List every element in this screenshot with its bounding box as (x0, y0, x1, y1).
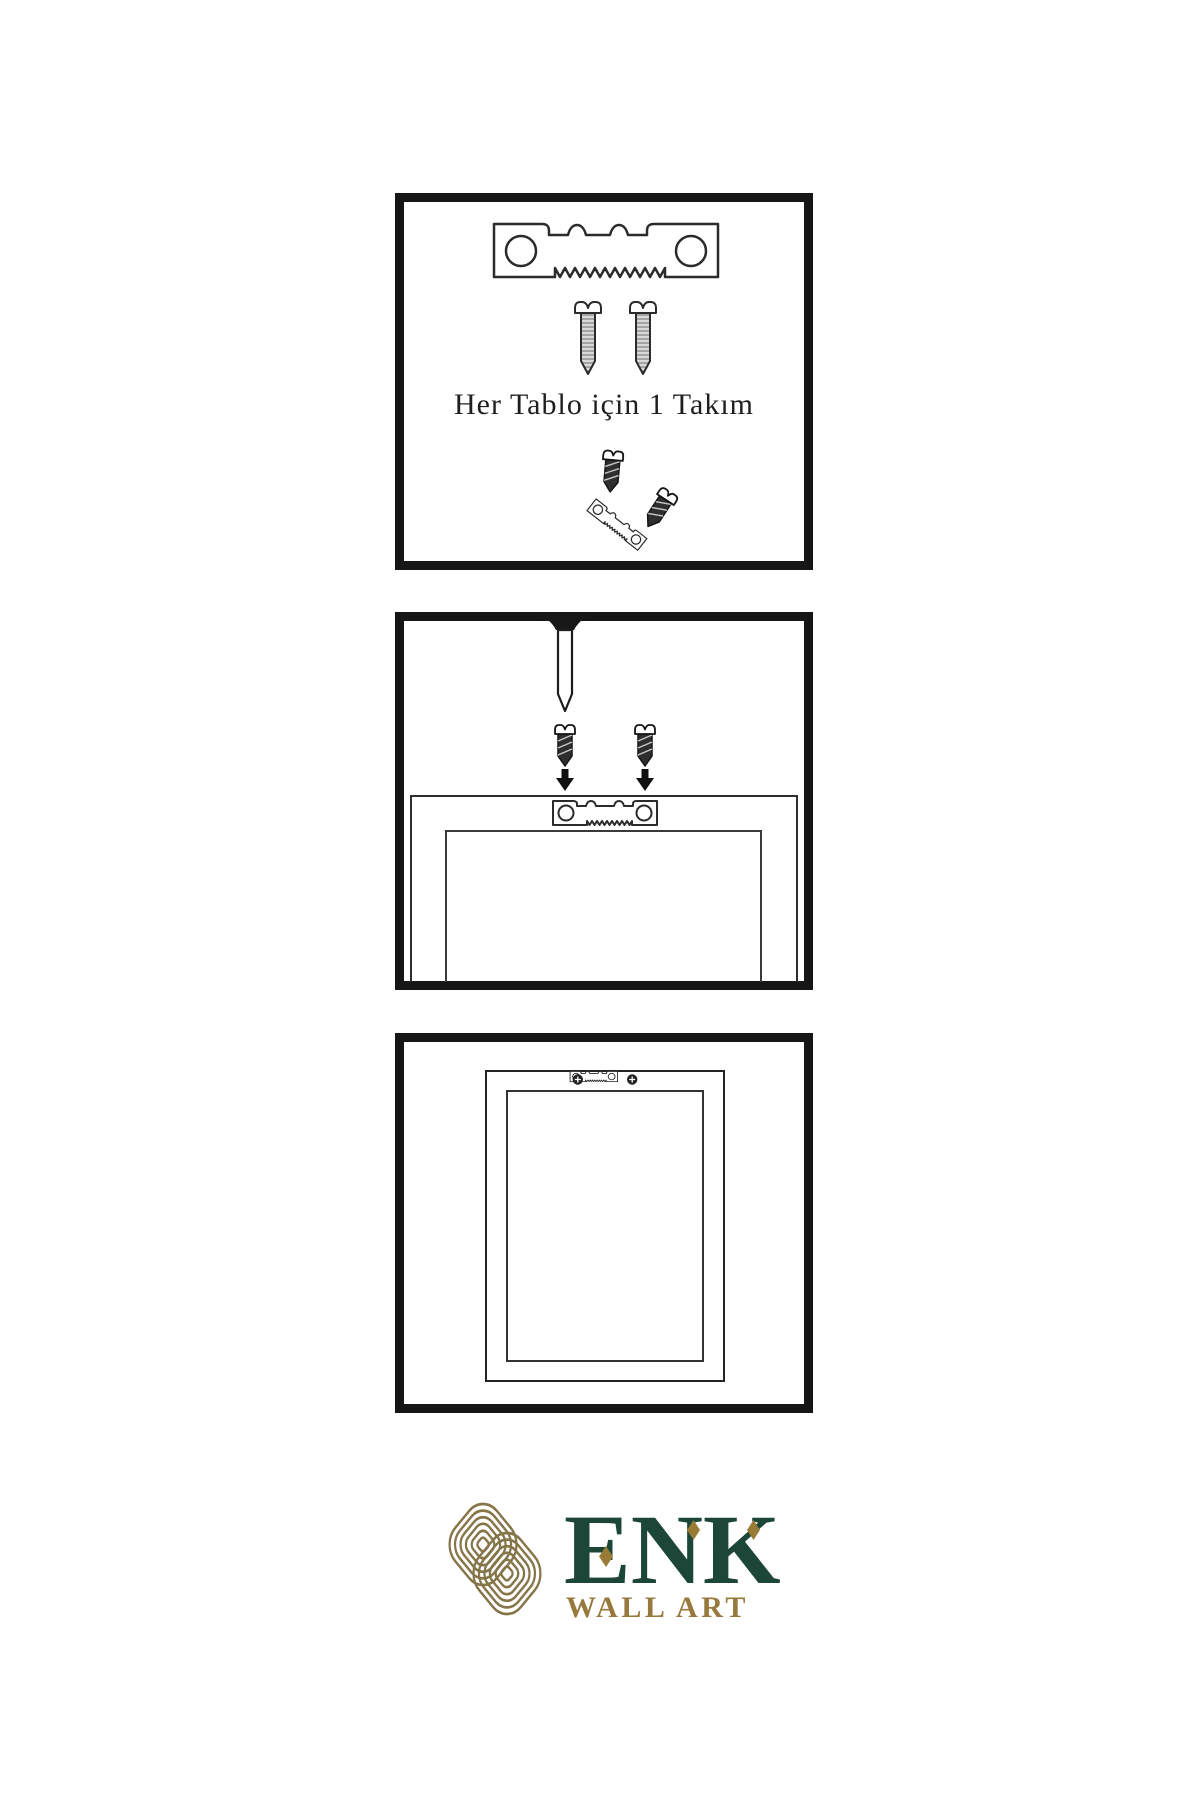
knot-link-a (441, 1494, 524, 1595)
knot-link-b (465, 1523, 548, 1624)
screw-icon (626, 298, 660, 378)
frame-back-inner (506, 1090, 704, 1362)
sawtooth-hanger-icon (492, 222, 720, 280)
frame-back-inner (445, 830, 762, 982)
instruction-sheet: Her Tablo için 1 Takım (0, 0, 1200, 1800)
panel-hardware-kit: Her Tablo için 1 Takım (395, 193, 813, 570)
knot-icon (438, 1490, 552, 1628)
panel-install-step (395, 612, 813, 990)
down-arrow-icon (555, 769, 575, 791)
screw-icon (633, 722, 657, 768)
sawtooth-hanger-icon (552, 800, 658, 826)
panel-hang-step (395, 1033, 813, 1413)
nail-icon (541, 616, 589, 722)
mounted-sawtooth-hanger-icon (568, 1071, 642, 1088)
screw-icon (571, 298, 605, 378)
screw-icon (553, 722, 577, 768)
screw-attach-demo-icon (570, 448, 682, 554)
down-arrow-icon (635, 769, 655, 791)
brand-name: ENK (564, 1500, 781, 1600)
brand-tagline: WALL ART (566, 1593, 749, 1623)
kit-caption: Her Tablo için 1 Takım (404, 388, 804, 422)
